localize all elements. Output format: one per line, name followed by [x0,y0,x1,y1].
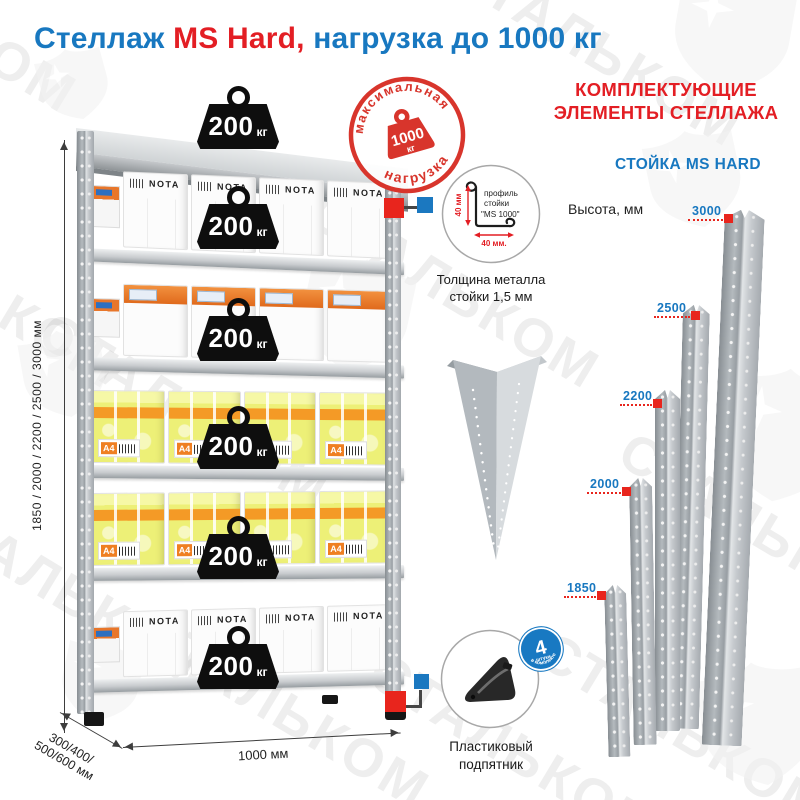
post-profile-detail-circle: 40 мм 40 мм. профиль стойки "MS 1000" [441,164,541,264]
post-height-label: 2000 [590,477,619,491]
title-suffix: нагрузка до 1000 кг [313,22,602,55]
components-panel: КОМПЛЕКТУЮЩИЕ ЭЛЕМЕНТЫ СТЕЛЛАЖА СТОЙКА M… [0,0,800,800]
upright-post-3000 [702,209,765,746]
dotted-leader-line [587,492,621,494]
profile-label-line2: стойки [484,199,509,208]
upright-post-2000 [629,478,657,745]
upright-post-2200 [655,390,680,731]
dotted-leader-line [654,316,690,318]
red-marker-square [691,311,700,320]
upright-post-1850 [604,585,630,758]
profile-dim-horizontal: 40 мм. [481,239,506,248]
dotted-leader-line [564,596,596,598]
post-height-label: 1850 [567,581,596,595]
post-height-label: 3000 [692,204,721,218]
red-marker-square [597,591,606,600]
red-marker-square [653,399,662,408]
components-subheading: СТОЙКА MS HARD [560,156,800,174]
plastic-foot-caption: Пластиковый подпятник [425,738,557,773]
page-title: Стеллаж MS Hard, нагрузка до 1000 кг [34,22,602,56]
profile-dim-vertical: 40 мм [454,193,463,216]
post-height-label: 2500 [657,301,686,315]
height-axis-label: Высота, мм [568,201,643,217]
profile-cross-section-diagram: 40 мм 40 мм. профиль стойки "MS 1000" [441,164,541,264]
red-marker-square [622,487,631,496]
dotted-leader-line [688,219,723,221]
title-model: MS Hard, [173,22,305,55]
profile-caption: Толщина металла стойки 1,5 мм [425,272,557,306]
dotted-leader-line [620,404,652,406]
components-heading: КОМПЛЕКТУЮЩИЕ ЭЛЕМЕНТЫ СТЕЛЛАЖА [538,79,794,125]
plastic-foot-detail-circle: 4 штуки в комплекте [440,629,540,729]
red-marker-square [724,214,733,223]
title-prefix: Стеллаж [34,22,165,55]
profile-label-line1: профиль [484,189,518,198]
profile-label-line3: "MS 1000" [481,210,520,219]
post-height-label: 2200 [623,389,652,403]
